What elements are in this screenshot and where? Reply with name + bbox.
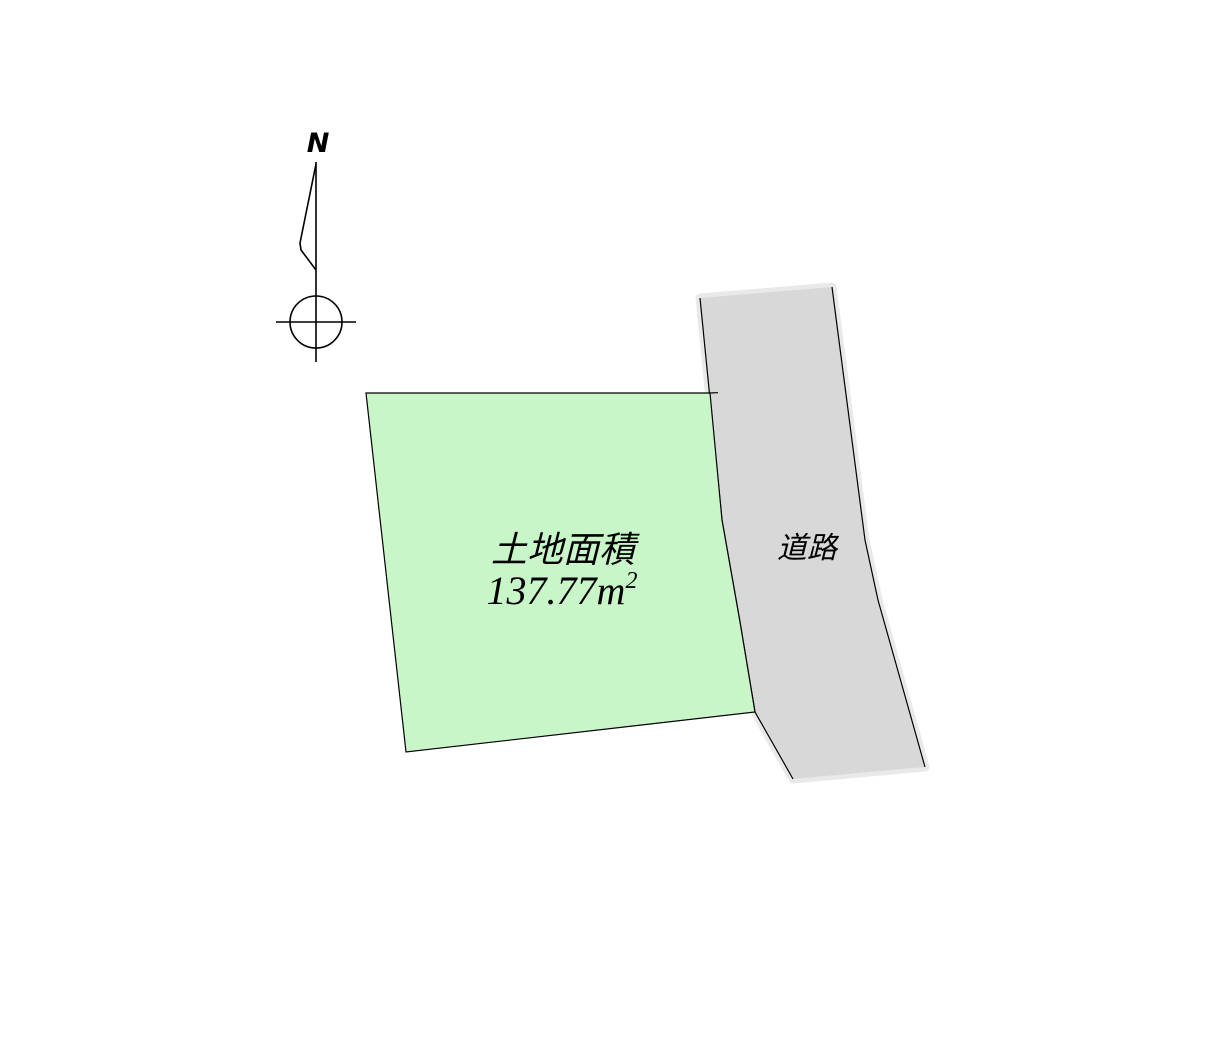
parcel-area-value: 137.77m2	[487, 568, 638, 613]
north-compass: N	[276, 128, 356, 362]
parcel-title: 土地面積	[491, 530, 640, 570]
parcel-area-unit-exponent: 2	[625, 568, 637, 594]
north-label: N	[307, 128, 330, 159]
parcel-area-number: 137.77	[487, 568, 599, 613]
site-plan-drawing: N 土地面積 137.77m2 道路	[0, 0, 1228, 1042]
compass-pennant	[300, 164, 316, 270]
road-label: 道路	[777, 532, 840, 565]
parcel-area-unit: m	[597, 568, 626, 613]
site-plan-svg: N 土地面積 137.77m2 道路	[0, 0, 1228, 1042]
